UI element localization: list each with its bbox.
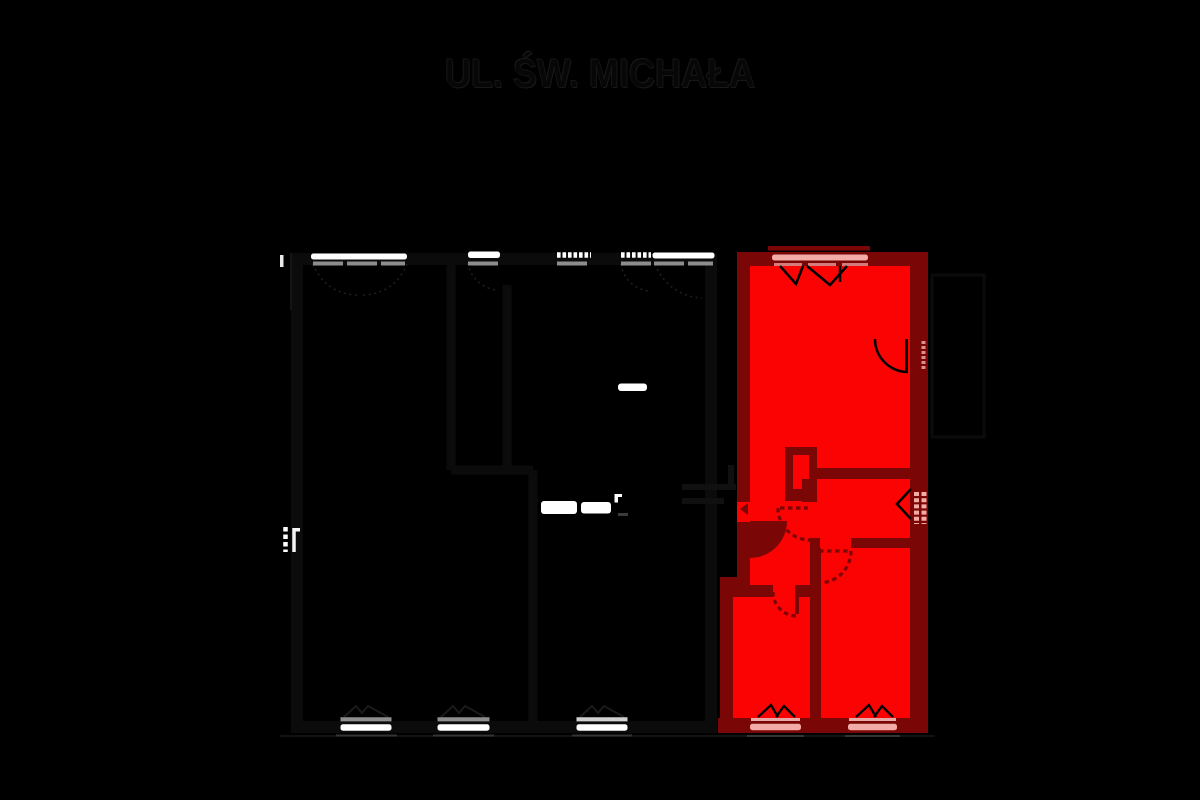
side-window-hook <box>294 528 300 532</box>
entrance-opening <box>737 502 750 522</box>
interior-walls <box>451 259 533 727</box>
kitchen-wall-right <box>851 538 911 548</box>
kitchen-wall-stub <box>802 479 817 502</box>
white-window-symbols <box>280 252 715 731</box>
left-wall-lower <box>720 590 733 733</box>
window-swing-arc <box>313 264 358 295</box>
stair-landing-mark <box>581 502 611 514</box>
living-room-wall <box>811 468 911 479</box>
bottom-window-sill <box>438 724 490 730</box>
mid-plan-fixture <box>618 384 647 392</box>
apartment-floor[interactable] <box>733 266 910 718</box>
neighbor-balcony-outline <box>932 275 984 437</box>
window-opening-zigzag <box>441 706 485 717</box>
left-wall-upper <box>737 252 750 502</box>
top-window-sill <box>772 255 868 261</box>
bottom-window-sill <box>341 724 392 730</box>
stair-mark <box>618 513 628 516</box>
outer-sill-line <box>768 246 870 251</box>
top-window-sill <box>311 254 407 260</box>
bottom-window-sill <box>848 724 897 730</box>
window-swing-arc <box>621 264 650 291</box>
window-opening-zigzag <box>344 706 388 717</box>
floor-plan-canvas <box>0 0 1200 800</box>
top-window-sill <box>468 252 500 259</box>
left-wall-mid <box>737 522 750 580</box>
highlighted-apartment[interactable] <box>718 246 928 733</box>
floor-plan-page: UL. ŚW. MICHAŁA <box>0 0 1200 800</box>
hall-wall-left <box>722 585 773 597</box>
corner-window-mark <box>280 255 284 267</box>
window-swing-arc <box>362 264 407 295</box>
bottom-window-sill <box>750 724 801 730</box>
window-swing-arc <box>468 263 497 290</box>
top-window-sill <box>653 253 715 259</box>
bottom-window-sill <box>577 724 628 730</box>
room-divider-wall <box>810 548 821 718</box>
window-opening-zigzag <box>580 706 624 717</box>
stair-landing-mark <box>541 501 577 514</box>
kitchen-wall-left <box>810 538 820 548</box>
stair-small-mark <box>615 494 623 497</box>
window-swing-arc <box>655 264 702 298</box>
